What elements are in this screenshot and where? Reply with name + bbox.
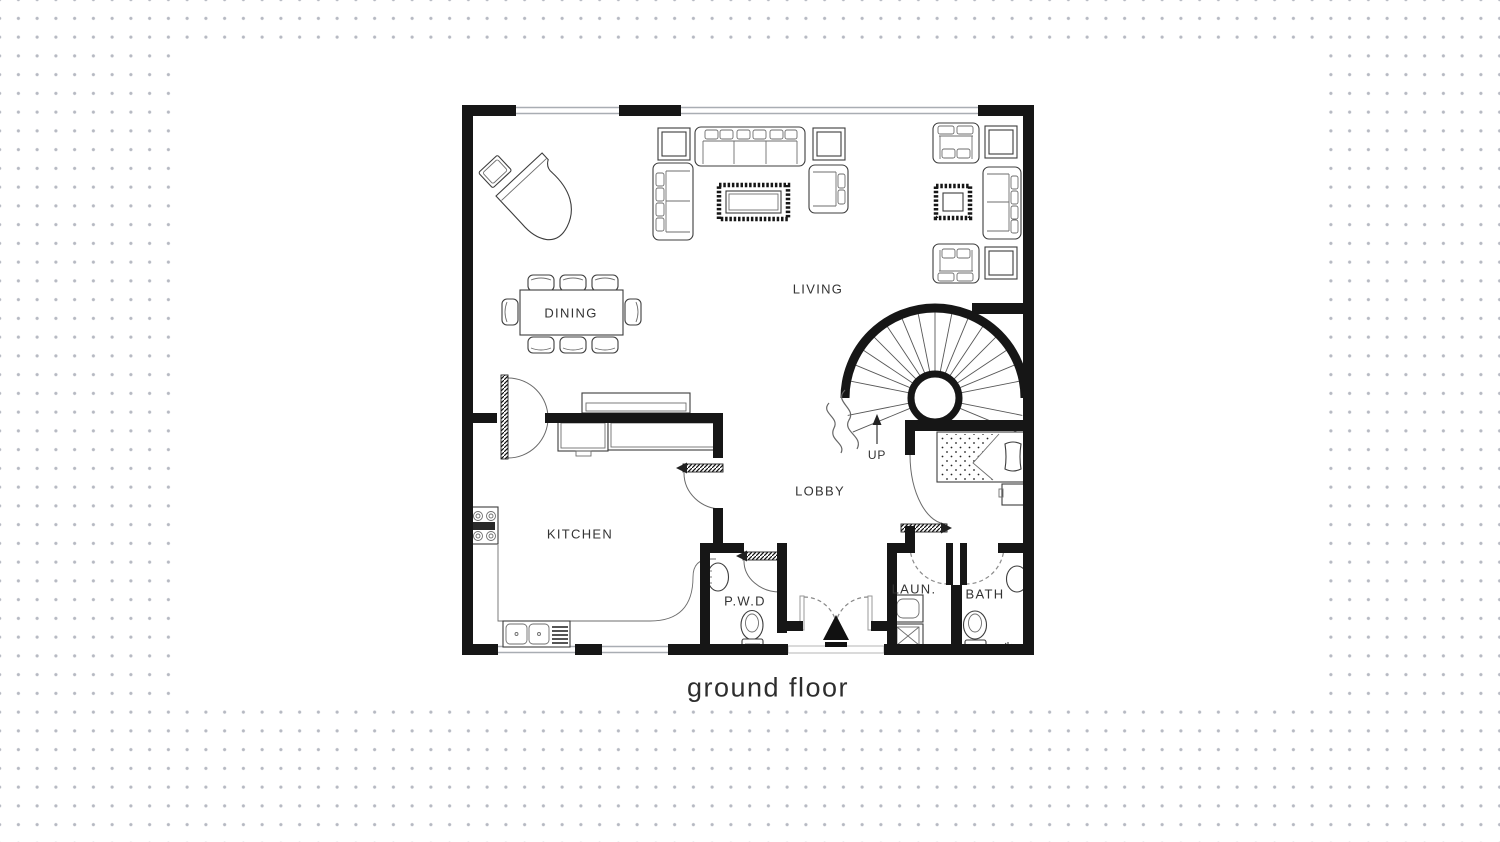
fireplace-table bbox=[936, 186, 970, 218]
window bbox=[681, 108, 978, 114]
floor-plan-drawing bbox=[440, 80, 1060, 720]
stair-break-line bbox=[842, 390, 859, 449]
room-label-kitchen: KITCHEN bbox=[547, 527, 613, 542]
stair-up-label: UP bbox=[868, 448, 886, 462]
spiral-staircase bbox=[827, 308, 1025, 453]
pwd-door bbox=[736, 551, 780, 593]
sofa-2seat bbox=[983, 167, 1021, 239]
armchair bbox=[933, 244, 979, 283]
kitchen-main-door bbox=[501, 375, 548, 459]
pillow bbox=[1005, 442, 1021, 471]
armchair bbox=[809, 165, 848, 213]
entry-marker-icon bbox=[823, 615, 849, 647]
bed bbox=[937, 432, 1025, 482]
window bbox=[516, 108, 619, 114]
kitchen-sink bbox=[503, 621, 570, 647]
fridge bbox=[558, 420, 608, 456]
nightstand bbox=[999, 484, 1024, 505]
room-label-laundry: LAUN. bbox=[892, 582, 937, 597]
dotted-drawing-board: LIVING DINING KITCHEN LOBBY UP P.W.D LAU… bbox=[0, 0, 1500, 842]
kitchen-counter bbox=[498, 420, 717, 621]
room-label-dining: DINING bbox=[544, 306, 597, 321]
grand-piano bbox=[476, 132, 592, 250]
window bbox=[602, 647, 668, 653]
sofa-3seat bbox=[695, 127, 805, 166]
room-label-living: LIVING bbox=[793, 282, 843, 297]
loveseat bbox=[653, 163, 693, 240]
room-label-pwd: P.W.D bbox=[724, 594, 766, 609]
piano-bench bbox=[478, 155, 511, 188]
up-arrow-icon bbox=[873, 414, 882, 444]
coffee-table bbox=[719, 185, 788, 219]
room-label-lobby: LOBBY bbox=[795, 484, 845, 499]
stair-break-line bbox=[827, 403, 842, 453]
laundry-sink bbox=[893, 595, 923, 622]
plan-caption: ground floor bbox=[687, 673, 849, 704]
room-label-bath: BATH bbox=[966, 587, 1005, 602]
laundry-door bbox=[910, 546, 948, 584]
armchair bbox=[933, 123, 979, 163]
kitchen-island-counter bbox=[582, 393, 690, 413]
pwd-sink bbox=[707, 563, 729, 591]
kitchen-pass-door bbox=[676, 463, 723, 510]
